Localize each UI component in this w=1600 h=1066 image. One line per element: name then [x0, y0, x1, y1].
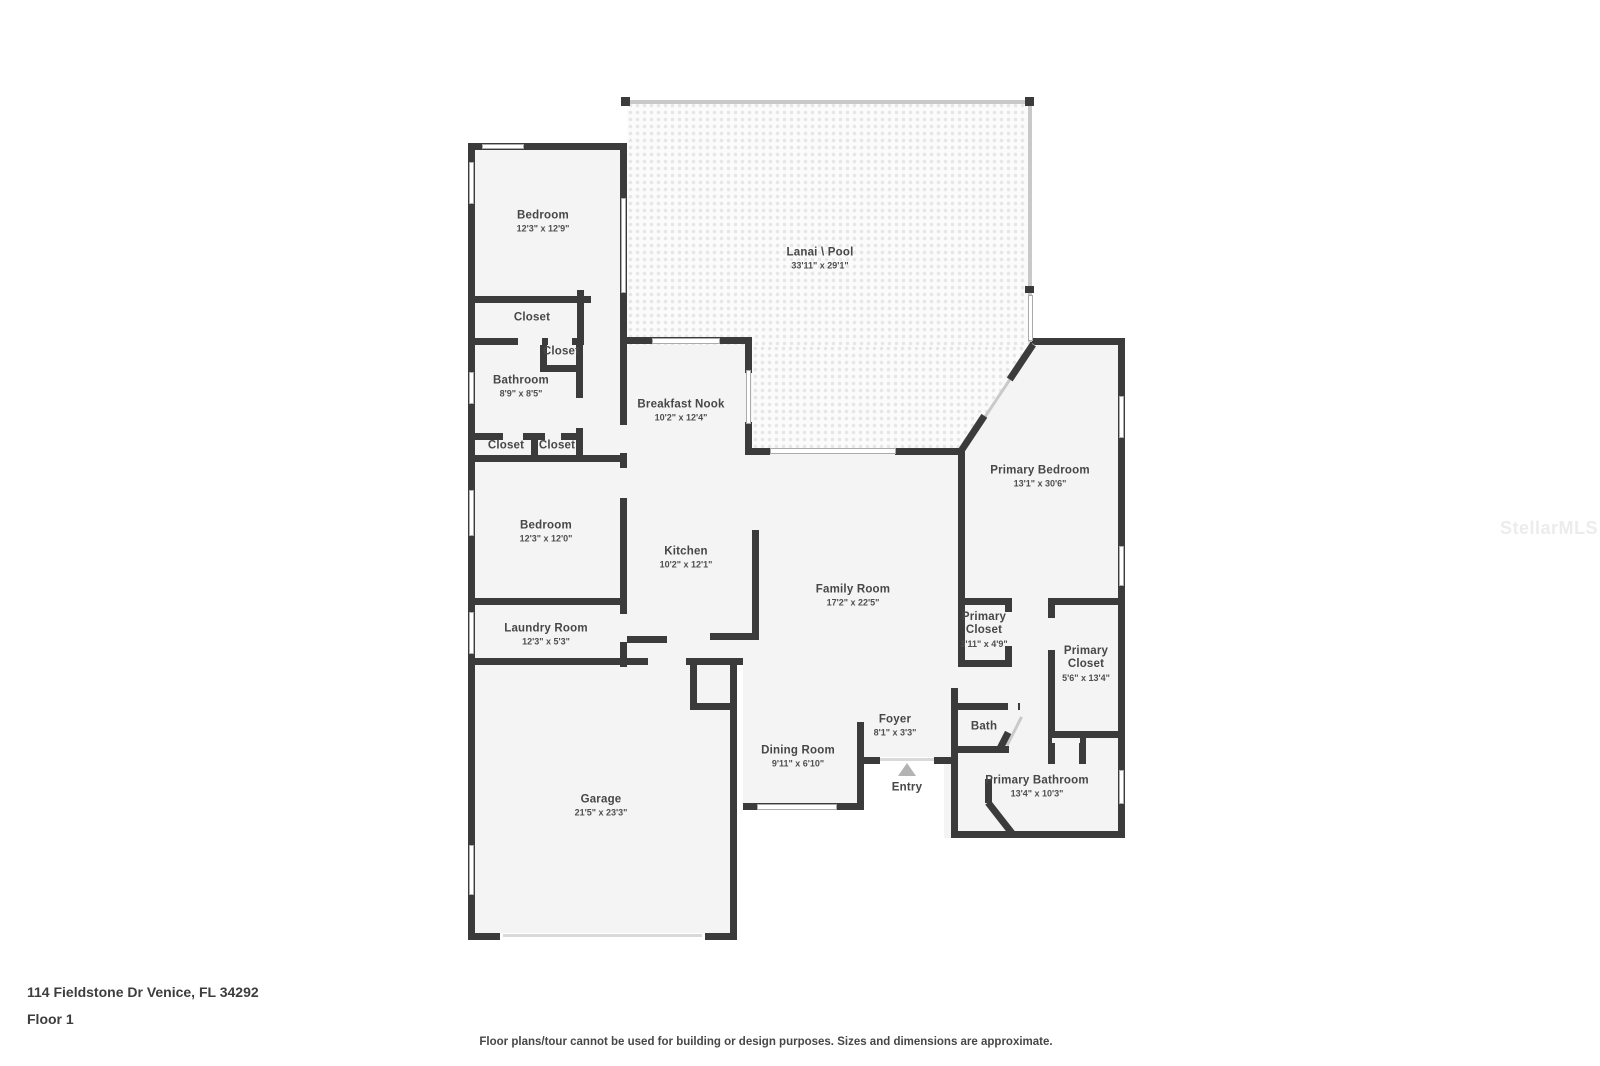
wall: [745, 448, 770, 455]
room-floor: [944, 595, 1125, 838]
door-opening: [1008, 703, 1018, 710]
wall: [985, 779, 992, 803]
wall: [1030, 338, 1125, 345]
wall: [627, 636, 667, 643]
lanai-floor: [627, 102, 1030, 345]
garage-door-line: [503, 934, 702, 937]
entry-threshold: [880, 758, 934, 761]
window: [770, 448, 896, 454]
window: [482, 144, 524, 149]
window: [469, 162, 474, 204]
window: [1119, 546, 1124, 586]
room-floor: [627, 337, 752, 662]
wall: [934, 757, 954, 764]
entry-direction-icon: [898, 763, 916, 776]
window: [1028, 295, 1033, 341]
wall: [958, 448, 965, 667]
room-floor: [743, 655, 864, 810]
wall: [958, 660, 1012, 667]
door-opening: [620, 425, 627, 453]
door-opening: [1005, 612, 1012, 646]
door-opening: [648, 658, 686, 665]
door-opening: [620, 614, 627, 642]
watermark-text: StellarMLS: [1500, 518, 1598, 539]
wall: [468, 296, 591, 303]
window: [652, 338, 720, 344]
room-label-entry: Entry: [892, 781, 922, 794]
wall: [690, 703, 737, 710]
wall: [730, 658, 737, 940]
lanai-screen: [625, 100, 1032, 104]
floor-number-label: Floor 1: [27, 1011, 74, 1027]
window: [621, 198, 626, 293]
wall: [895, 448, 965, 455]
window: [757, 804, 837, 810]
wall: [468, 658, 743, 665]
window: [469, 845, 474, 895]
wall: [1079, 738, 1086, 764]
wall: [468, 143, 475, 940]
wall: [951, 753, 958, 838]
screen-post: [1025, 286, 1034, 293]
door-opening: [1052, 738, 1080, 743]
wall: [468, 455, 627, 462]
wall: [468, 598, 627, 605]
wall: [468, 433, 583, 440]
screen-post: [1025, 97, 1034, 106]
wall: [752, 530, 759, 637]
door-opening: [503, 433, 523, 440]
wall: [864, 757, 880, 764]
disclaimer-text: Floor plans/tour cannot be used for buil…: [0, 1036, 1532, 1048]
door-opening: [548, 338, 572, 345]
door-opening: [545, 433, 561, 440]
wall: [1048, 598, 1125, 605]
window: [469, 612, 474, 654]
window: [746, 370, 751, 424]
door-opening: [576, 398, 583, 428]
wall: [577, 290, 584, 345]
wall: [951, 688, 958, 753]
screen-post: [621, 97, 630, 106]
door-opening: [518, 338, 542, 345]
wall: [951, 831, 1125, 838]
window: [1119, 396, 1124, 438]
address-text: 114 Fieldstone Dr Venice, FL 34292: [27, 984, 259, 1000]
wall: [745, 337, 752, 373]
door-opening: [620, 468, 627, 498]
floor-plan: Bedroom12'3" x 12'9" Lanai \ Pool33'11" …: [0, 0, 1600, 1066]
window: [469, 372, 474, 404]
door-opening: [1048, 618, 1055, 650]
window: [469, 490, 474, 536]
wall: [710, 633, 759, 640]
wall: [576, 345, 583, 372]
wall: [958, 598, 1012, 605]
window: [1119, 770, 1124, 804]
room-floor: [468, 143, 627, 667]
wall: [1048, 731, 1125, 738]
wall: [857, 722, 864, 810]
